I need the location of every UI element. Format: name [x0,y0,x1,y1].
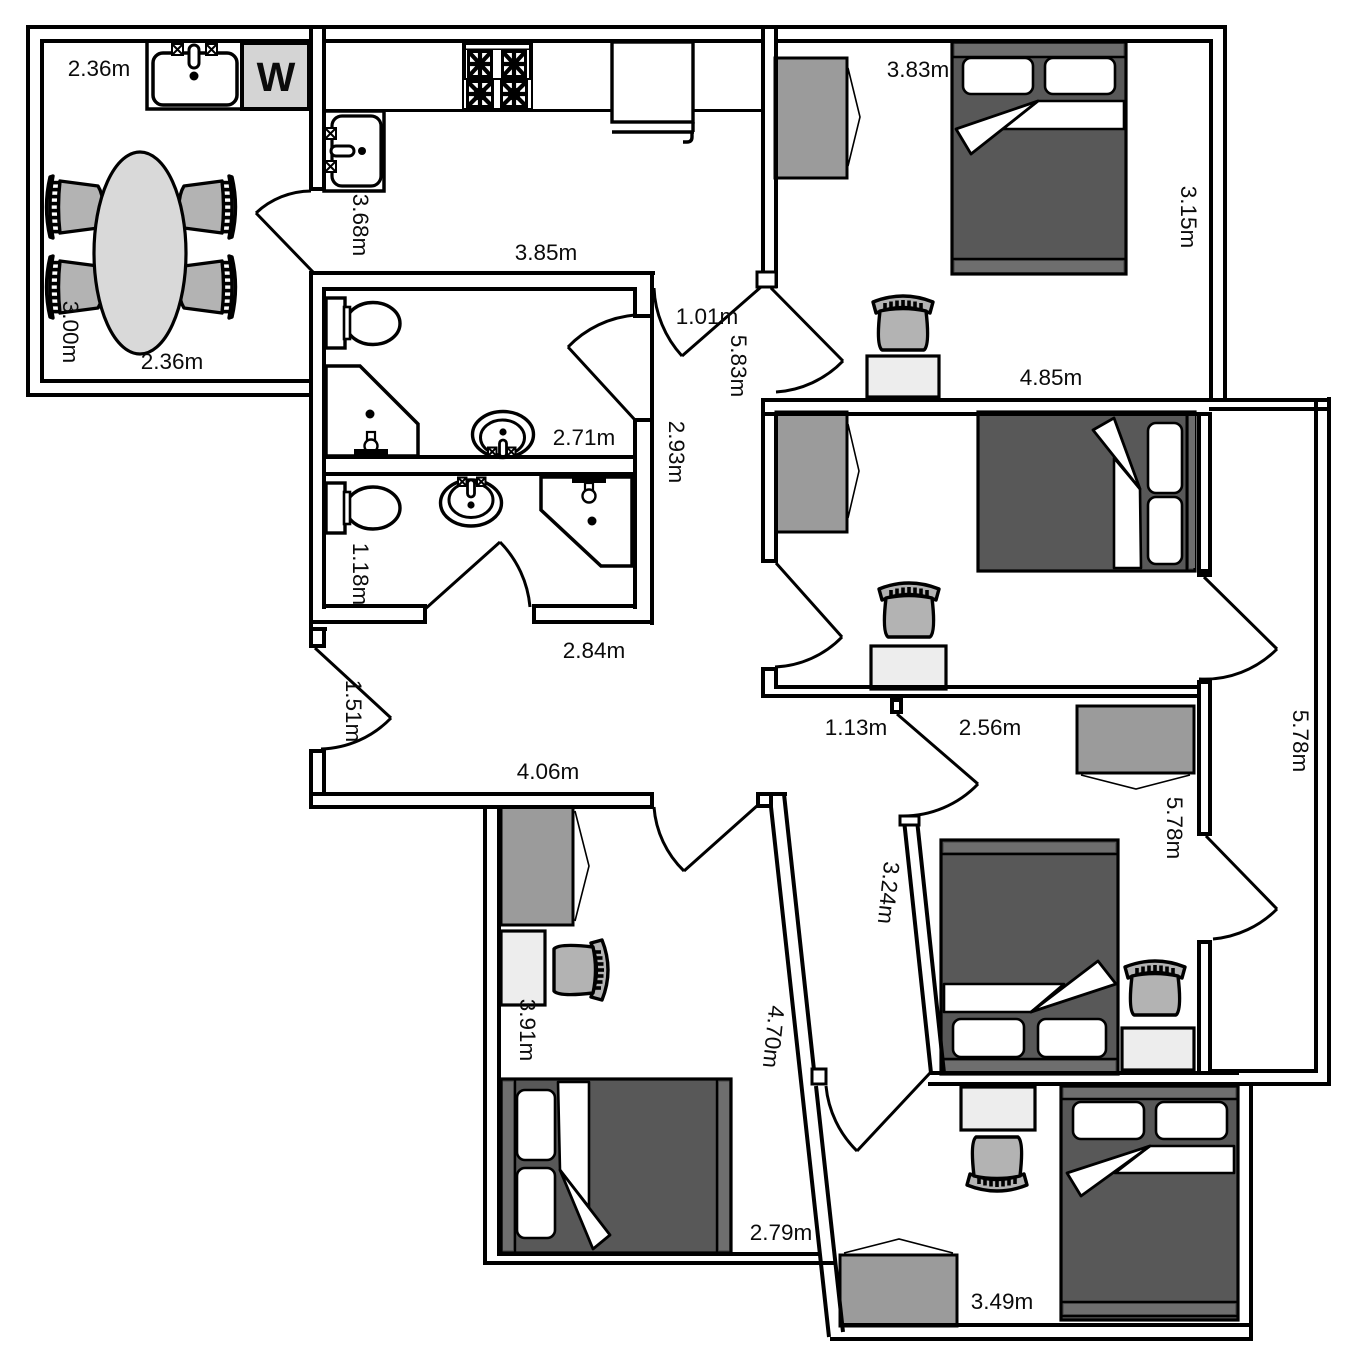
svg-text:3.49m: 3.49m [971,1289,1034,1314]
svg-text:2.71m: 2.71m [553,425,616,450]
svg-text:2.79m: 2.79m [750,1220,813,1245]
svg-text:4.06m: 4.06m [517,759,580,784]
svg-text:3.91m: 3.91m [515,999,540,1062]
svg-text:3.83m: 3.83m [887,57,950,82]
svg-text:2.36m: 2.36m [141,349,204,374]
svg-text:W: W [257,54,296,100]
svg-text:4.85m: 4.85m [1020,365,1083,390]
svg-text:2.84m: 2.84m [563,638,626,663]
svg-text:1.13m: 1.13m [825,715,888,740]
svg-text:5.78m: 5.78m [1288,710,1313,773]
svg-text:1.01m: 1.01m [676,304,739,329]
svg-text:3.00m: 3.00m [58,301,83,364]
svg-text:2.93m: 2.93m [664,421,689,484]
svg-text:1.51m: 1.51m [341,680,366,743]
svg-text:1.18m: 1.18m [348,543,373,606]
svg-text:2.56m: 2.56m [959,715,1022,740]
svg-text:2.36m: 2.36m [68,56,131,81]
svg-text:3.85m: 3.85m [515,240,578,265]
svg-text:5.83m: 5.83m [726,335,751,398]
svg-text:3.15m: 3.15m [1176,186,1201,249]
svg-text:3.68m: 3.68m [348,194,373,257]
svg-text:5.78m: 5.78m [1162,797,1187,860]
